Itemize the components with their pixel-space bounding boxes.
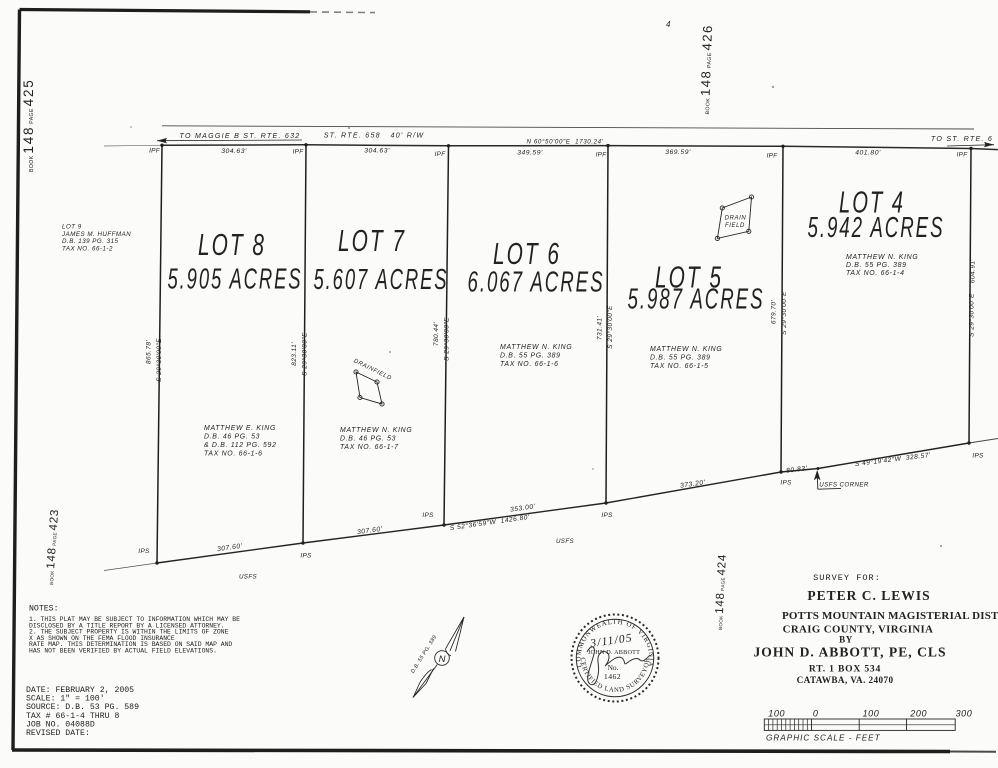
- svg-text:N: N: [439, 654, 446, 665]
- svg-text:N 60°50'00"E 1730.24': N 60°50'00"E 1730.24': [527, 139, 604, 146]
- svg-text:IPF: IPF: [957, 152, 969, 159]
- svg-text:5.942 ACRES: 5.942 ACRES: [808, 212, 945, 244]
- svg-text:S 29°30'00"E: S 29°30'00"E: [780, 291, 788, 335]
- svg-text:MATTHEW N. KING: MATTHEW N. KING: [846, 254, 918, 261]
- svg-text:5.905 ACRES: 5.905 ACRES: [168, 264, 303, 296]
- svg-text:TAX NO. 66-1-2: TAX NO. 66-1-2: [62, 245, 113, 252]
- svg-text:S 49°19'42"W 328.57': S 49°19'42"W 328.57': [854, 451, 931, 468]
- svg-text:IPS: IPS: [138, 548, 150, 555]
- svg-text:JOHN D. ABBOTT: JOHN D. ABBOTT: [588, 649, 640, 656]
- svg-text:GRAPHIC SCALE - FEET: GRAPHIC SCALE - FEET: [766, 734, 881, 743]
- svg-text:IPS: IPS: [300, 553, 312, 560]
- svg-text:IPS: IPS: [972, 453, 984, 460]
- svg-text:865.78': 865.78': [146, 340, 153, 365]
- svg-text:TAX NO. 66-1-7: TAX NO. 66-1-7: [340, 444, 399, 451]
- svg-text:RT. 1 BOX 534: RT. 1 BOX 534: [809, 664, 881, 675]
- svg-text:200: 200: [909, 709, 927, 719]
- svg-text:D.B. 46 PG. 53: D.B. 46 PG. 53: [340, 436, 396, 443]
- svg-text:USFS CORNER: USFS CORNER: [819, 482, 869, 489]
- svg-text:NOTES:: NOTES:: [29, 605, 58, 614]
- svg-text:D.B. 55 PG. 389: D.B. 55 PG. 389: [650, 355, 711, 362]
- svg-text:USFS: USFS: [239, 574, 258, 581]
- svg-text:BY: BY: [839, 635, 853, 645]
- svg-text:TAX NO. 66-1-6: TAX NO. 66-1-6: [204, 451, 263, 458]
- svg-text:IPF: IPF: [435, 151, 447, 158]
- svg-text:IPS: IPS: [601, 512, 613, 519]
- svg-text:BOOK 148 PAGE 426: BOOK 148 PAGE 426: [697, 24, 715, 115]
- svg-text:LOT 9: LOT 9: [62, 224, 82, 231]
- svg-text:MATTHEW N. KING: MATTHEW N. KING: [650, 346, 722, 353]
- svg-text:S 29°30'00"E: S 29°30'00"E: [443, 317, 451, 361]
- svg-text:4: 4: [666, 20, 671, 29]
- svg-text:IPS: IPS: [422, 512, 434, 519]
- svg-text:731.41': 731.41': [597, 316, 604, 341]
- svg-text:LOT 7: LOT 7: [338, 223, 406, 258]
- svg-text:S 29°30'00"E: S 29°30'00"E: [155, 338, 163, 382]
- svg-text:LOT 8: LOT 8: [198, 227, 266, 262]
- svg-text:BOOK 148 PAGE 425: BOOK 148 PAGE 425: [21, 78, 36, 172]
- svg-text:823.11': 823.11': [291, 342, 298, 366]
- svg-text:REVISED DATE:: REVISED DATE:: [26, 729, 90, 738]
- svg-text:TAX NO. 66-1-6: TAX NO. 66-1-6: [500, 361, 559, 368]
- svg-text:S 29°30'00"E: S 29°30'00"E: [301, 332, 309, 376]
- svg-text:D.B. 139 PG. 315: D.B. 139 PG. 315: [62, 238, 119, 245]
- svg-text:CRAIG COUNTY, VIRGINIA: CRAIG COUNTY, VIRGINIA: [783, 624, 934, 636]
- svg-text:100: 100: [863, 709, 880, 719]
- svg-text:353.00': 353.00': [510, 503, 537, 514]
- svg-text:S 52°36'59"W 1426.80': S 52°36'59"W 1426.80': [449, 513, 530, 532]
- svg-text:ST. RTE. 658 40' R/W: ST. RTE. 658 40' R/W: [324, 131, 425, 139]
- svg-text:IPF: IPF: [596, 152, 608, 159]
- svg-text:PETER C. LEWIS: PETER C. LEWIS: [807, 588, 930, 603]
- svg-text:401.80': 401.80': [855, 150, 881, 157]
- svg-text:SCALE: 1" = 100': SCALE: 1" = 100': [26, 694, 105, 704]
- svg-text:USFS: USFS: [556, 538, 575, 545]
- svg-text:BOOK 148 PAGE 424: BOOK 148 PAGE 424: [713, 554, 729, 631]
- svg-text:FIELD: FIELD: [725, 223, 745, 229]
- svg-text:5.607 ACRES: 5.607 ACRES: [314, 264, 449, 296]
- svg-text:300: 300: [956, 709, 973, 719]
- svg-text:SURVEY FOR:: SURVEY FOR:: [813, 573, 881, 583]
- svg-text:TAX NO. 66-1-5: TAX NO. 66-1-5: [650, 363, 709, 370]
- svg-text:304.63': 304.63': [221, 148, 247, 155]
- svg-text:IPF: IPF: [767, 152, 779, 159]
- svg-text:TAX NO. 66-1-4: TAX NO. 66-1-4: [846, 270, 905, 277]
- svg-text:MATTHEW E. KING: MATTHEW E. KING: [204, 425, 276, 432]
- svg-text:No.: No.: [608, 663, 619, 672]
- svg-text:MATTHEW N. KING: MATTHEW N. KING: [500, 344, 572, 351]
- svg-text:679.70': 679.70': [771, 300, 778, 325]
- svg-text:D.B. 46 PG. 53: D.B. 46 PG. 53: [204, 434, 260, 441]
- svg-text:3/11/05: 3/11/05: [589, 632, 634, 650]
- svg-text:D.B. 55 PG. 389: D.B. 55 PG. 389: [500, 353, 561, 360]
- svg-text:S 29°30'00"E: S 29°30'00"E: [606, 305, 614, 349]
- svg-text:CATAWBA, VA. 24070: CATAWBA, VA. 24070: [797, 675, 894, 685]
- svg-text:HAS NOT BEEN VERIFIED BY ACTUA: HAS NOT BEEN VERIFIED BY ACTUAL FIELD EL…: [29, 648, 217, 655]
- svg-text:DRAINFIELD: DRAINFIELD: [352, 358, 392, 382]
- svg-text:IPF: IPF: [293, 149, 305, 156]
- svg-text:0: 0: [813, 709, 819, 719]
- svg-text:5.987 ACRES: 5.987 ACRES: [628, 284, 765, 316]
- svg-text:780.44': 780.44': [433, 322, 440, 347]
- svg-text:80.83': 80.83': [786, 465, 808, 475]
- svg-text:S 29°30'00"E: S 29°30'00"E: [968, 293, 976, 337]
- svg-text:TO ST. RTE. 6: TO ST. RTE. 6: [931, 135, 993, 143]
- svg-text:IPS: IPS: [780, 480, 792, 487]
- svg-text:POTTS MOUNTAIN MAGISTERIAL DIS: POTTS MOUNTAIN MAGISTERIAL DISTRICT: [782, 610, 998, 622]
- svg-text:100: 100: [768, 709, 785, 719]
- svg-text:D.B. 55 PG. 389: D.B. 55 PG. 389: [846, 262, 907, 269]
- svg-text:304.63': 304.63': [364, 148, 390, 155]
- svg-text:DRAIN: DRAIN: [725, 216, 747, 222]
- svg-text:TO MAGGIE B ST. RTE. 632: TO MAGGIE B ST. RTE. 632: [180, 132, 301, 140]
- svg-text:604.91': 604.91': [970, 259, 977, 284]
- svg-text:MATTHEW N. KING: MATTHEW N. KING: [340, 427, 412, 434]
- svg-text:1462: 1462: [604, 672, 621, 681]
- svg-text:349.59': 349.59': [517, 149, 543, 156]
- svg-text:369.59': 369.59': [665, 149, 691, 156]
- svg-text:& D.B. 112 PG. 592: & D.B. 112 PG. 592: [204, 442, 277, 449]
- svg-text:6.067 ACRES: 6.067 ACRES: [468, 267, 605, 299]
- svg-text:IPF: IPF: [149, 148, 161, 155]
- svg-text:BOOK 148 PAGE 423: BOOK 148 PAGE 423: [44, 509, 61, 586]
- svg-text:JAMES M. HUFFMAN: JAMES M. HUFFMAN: [61, 231, 131, 238]
- svg-text:JOHN D. ABBOTT, PE, CLS: JOHN D. ABBOTT, PE, CLS: [753, 645, 946, 660]
